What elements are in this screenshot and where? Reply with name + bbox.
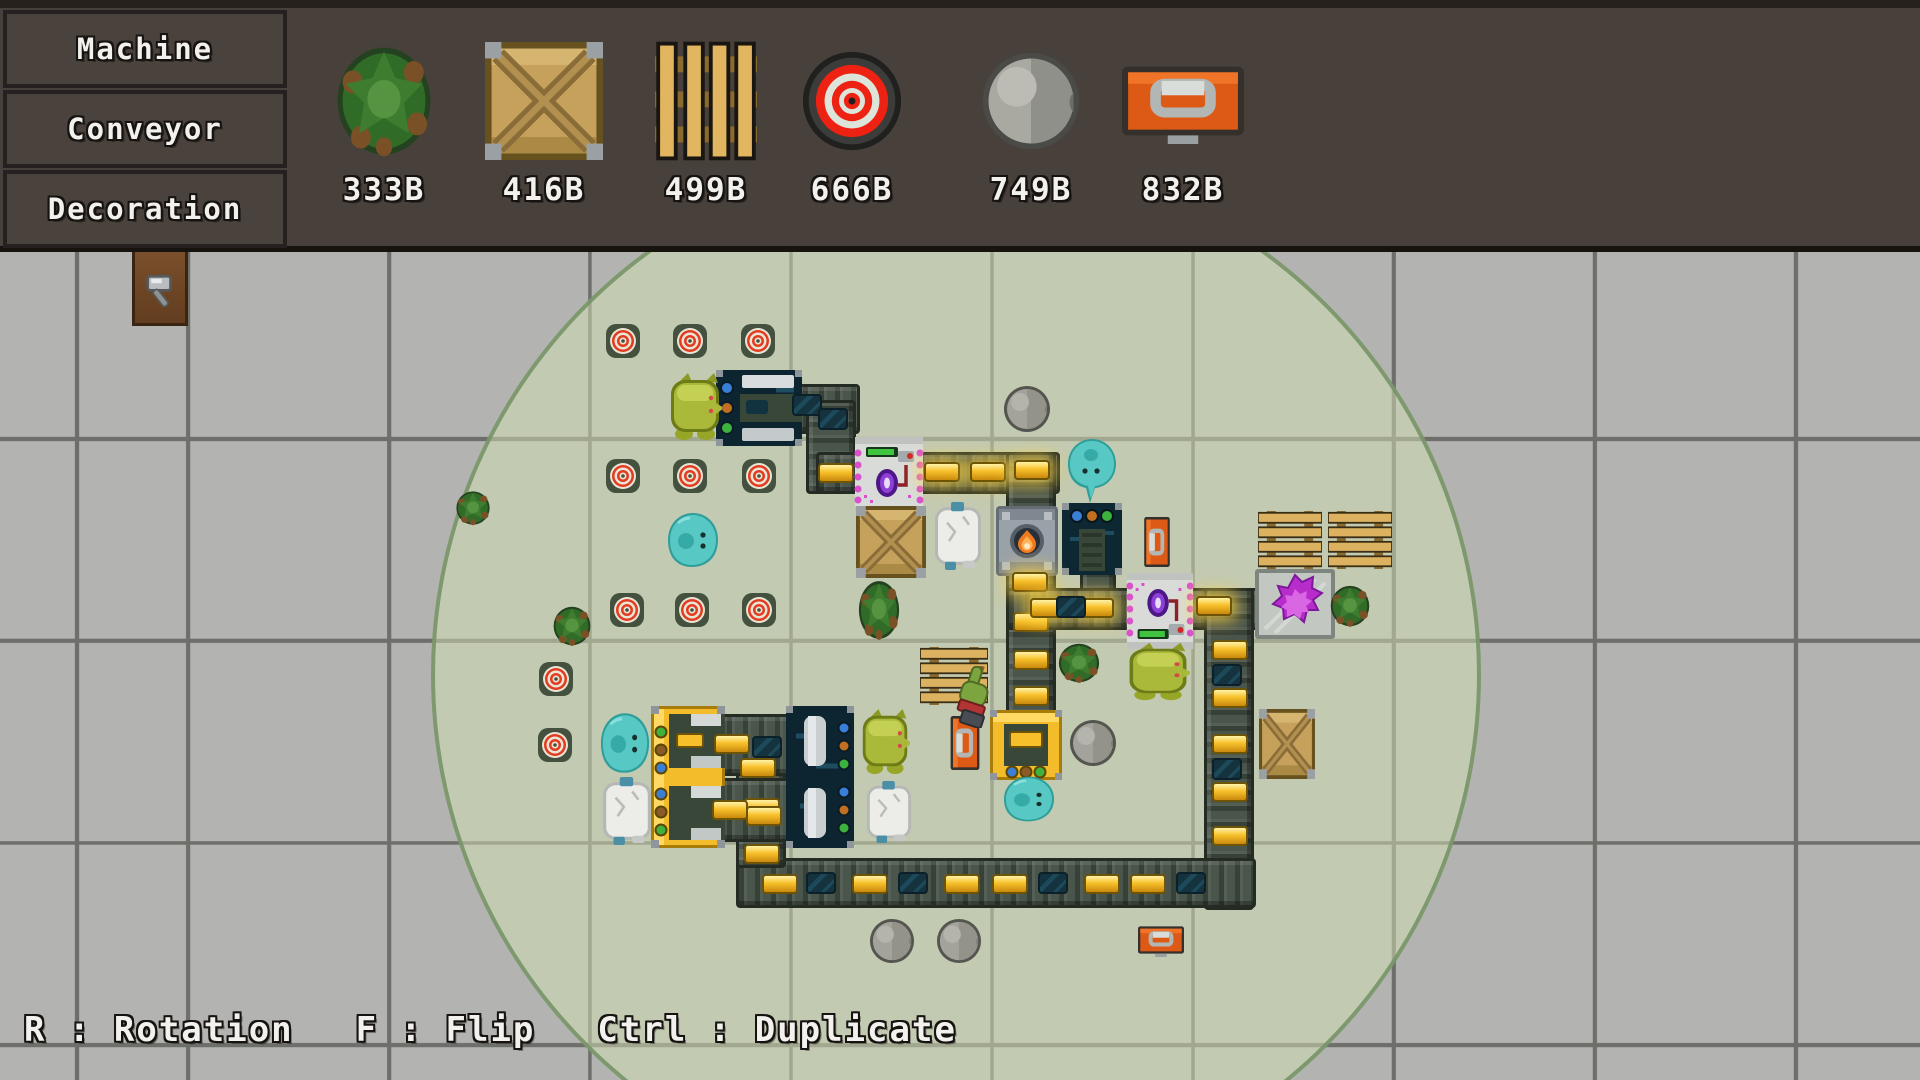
- press-machine[interactable]: [716, 370, 802, 446]
- ore-chunk[interactable]: [1212, 758, 1242, 780]
- target-decoration[interactable]: [538, 661, 574, 697]
- gold-bar[interactable]: [944, 874, 980, 894]
- gold-bar[interactable]: [1196, 596, 1232, 616]
- bin-machine[interactable]: [601, 777, 653, 845]
- shop-item-pallet[interactable]: 499B: [640, 8, 772, 246]
- boulder-decoration[interactable]: [1069, 719, 1117, 767]
- ore-chunk[interactable]: [1212, 664, 1242, 686]
- toolbox-icon: [1117, 32, 1249, 170]
- gold-bar[interactable]: [1012, 572, 1048, 592]
- crate-icon: [478, 32, 610, 170]
- active-tool-indicator[interactable]: [132, 252, 188, 326]
- gold-bar[interactable]: [1212, 826, 1248, 846]
- crate-decoration[interactable]: [856, 506, 926, 578]
- press-machine[interactable]: [786, 706, 854, 848]
- shop-item-toolbox[interactable]: 832B: [1117, 8, 1249, 246]
- item-price: 333B: [318, 172, 450, 208]
- furnace-machine[interactable]: [996, 506, 1058, 576]
- gold-bar[interactable]: [970, 462, 1006, 482]
- pallet-icon: [640, 32, 772, 170]
- bush-decoration[interactable]: [551, 604, 593, 648]
- bush-decoration[interactable]: [1056, 641, 1102, 685]
- ore-chunk[interactable]: [752, 736, 782, 758]
- gold-bar[interactable]: [1013, 650, 1049, 670]
- distributor-machine[interactable]: [651, 706, 725, 848]
- gold-bar[interactable]: [1212, 734, 1248, 754]
- bin-machine[interactable]: [933, 502, 983, 570]
- gold-bar[interactable]: [740, 758, 776, 778]
- target-decoration[interactable]: [609, 592, 645, 628]
- gold-bar[interactable]: [818, 463, 854, 483]
- cyan-creature[interactable]: [1002, 775, 1056, 823]
- build-toolbar: MachineConveyorDecoration 333B416B499B66…: [0, 0, 1920, 252]
- green-creature[interactable]: [668, 371, 722, 441]
- ghost-creature[interactable]: [1064, 437, 1120, 505]
- shop-item-boulder[interactable]: 749B: [965, 8, 1097, 246]
- target-decoration[interactable]: [740, 323, 776, 359]
- shop-item-target[interactable]: 666B: [786, 8, 918, 246]
- shop-item-bush[interactable]: 333B: [318, 8, 450, 246]
- bush-icon: [318, 32, 450, 170]
- bush-decoration[interactable]: [856, 577, 902, 643]
- target-decoration[interactable]: [741, 458, 777, 494]
- gold-bar[interactable]: [924, 462, 960, 482]
- tab-decoration[interactable]: Decoration: [3, 170, 287, 248]
- boulder-decoration[interactable]: [1003, 385, 1051, 433]
- gold-bar[interactable]: [712, 800, 748, 820]
- target-decoration[interactable]: [674, 592, 710, 628]
- target-decoration[interactable]: [605, 323, 641, 359]
- target-decoration[interactable]: [537, 727, 573, 763]
- gold-bar[interactable]: [1084, 874, 1120, 894]
- green-creature[interactable]: [1126, 641, 1190, 701]
- crate-decoration[interactable]: [1259, 709, 1315, 779]
- gold-bar[interactable]: [1013, 686, 1049, 706]
- item-price: 499B: [640, 172, 772, 208]
- target-icon: [786, 32, 918, 170]
- gold-bar[interactable]: [762, 874, 798, 894]
- gold-bar[interactable]: [852, 874, 888, 894]
- game-screen: MachineConveyorDecoration 333B416B499B66…: [0, 0, 1920, 1080]
- cyan-creature[interactable]: [599, 711, 651, 775]
- ore-chunk[interactable]: [1176, 872, 1206, 894]
- target-decoration[interactable]: [741, 592, 777, 628]
- gold-bar[interactable]: [1212, 688, 1248, 708]
- hint-duplicate: Ctrl : Duplicate: [597, 1010, 957, 1050]
- gold-bar[interactable]: [746, 806, 782, 826]
- cyan-creature[interactable]: [666, 511, 720, 569]
- hint-flip: F : Flip: [356, 1010, 536, 1050]
- gold-bar[interactable]: [1212, 782, 1248, 802]
- item-price: 749B: [965, 172, 1097, 208]
- shop-item-crate[interactable]: 416B: [478, 8, 610, 246]
- spawner-machine[interactable]: [1062, 503, 1122, 575]
- gold-bar[interactable]: [1130, 874, 1166, 894]
- hammer-icon: [139, 269, 181, 323]
- bin-machine[interactable]: [865, 781, 913, 843]
- gold-bar[interactable]: [714, 734, 750, 754]
- boulder-decoration[interactable]: [869, 917, 915, 965]
- splat-pad[interactable]: [1255, 569, 1335, 639]
- toolbox-decoration[interactable]: [1138, 923, 1184, 957]
- assembler-machine[interactable]: [852, 437, 926, 513]
- boulder-decoration[interactable]: [936, 917, 982, 965]
- pallet-decoration[interactable]: [1328, 511, 1392, 569]
- tab-conveyor[interactable]: Conveyor: [3, 90, 287, 168]
- target-decoration[interactable]: [672, 323, 708, 359]
- category-tabs: MachineConveyorDecoration: [3, 10, 287, 250]
- gold-bar[interactable]: [992, 874, 1028, 894]
- ore-chunk[interactable]: [806, 872, 836, 894]
- green-creature[interactable]: [860, 707, 910, 775]
- bush-decoration[interactable]: [1328, 583, 1372, 629]
- ore-chunk[interactable]: [1038, 872, 1068, 894]
- gold-bar[interactable]: [1014, 460, 1050, 480]
- gold-bar[interactable]: [1212, 640, 1248, 660]
- ore-chunk[interactable]: [818, 408, 848, 430]
- item-price: 666B: [786, 172, 918, 208]
- toolbox-decoration[interactable]: [1141, 517, 1173, 567]
- ore-chunk[interactable]: [1056, 596, 1086, 618]
- bush-decoration[interactable]: [454, 489, 492, 527]
- target-decoration[interactable]: [672, 458, 708, 494]
- assembler-machine[interactable]: [1124, 573, 1196, 649]
- hotkey-hints: R : Rotation F : Flip Ctrl : Duplicate: [24, 1010, 957, 1050]
- item-price: 832B: [1117, 172, 1249, 208]
- ore-chunk[interactable]: [898, 872, 928, 894]
- item-price: 416B: [478, 172, 610, 208]
- target-decoration[interactable]: [605, 458, 641, 494]
- boulder-icon: [965, 32, 1097, 170]
- gold-bar[interactable]: [744, 844, 780, 864]
- hint-rotate: R : Rotation: [24, 1010, 294, 1050]
- tab-machine[interactable]: Machine: [3, 10, 287, 88]
- pallet-decoration[interactable]: [1258, 511, 1322, 569]
- hand-cursor: [950, 666, 1004, 728]
